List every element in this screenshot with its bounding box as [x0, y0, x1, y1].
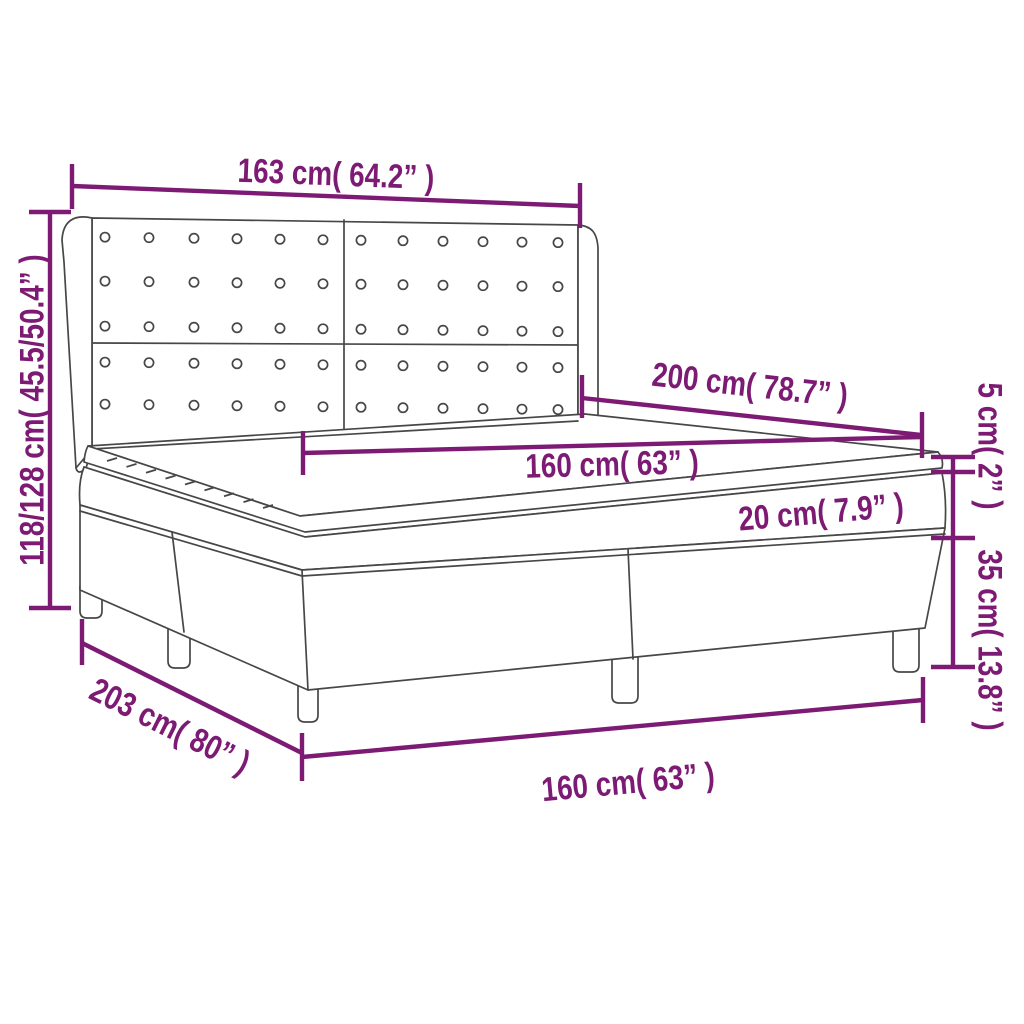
- tufting-button: [438, 281, 447, 290]
- dim-label-base-height: 35 cm( 13.8” ): [971, 549, 1009, 730]
- dim-label-mattress-width-top: 160 cm( 63” ): [525, 443, 699, 486]
- bed-leg: [612, 654, 638, 703]
- dimension-bed-height: 118/128 cm( 45.5/50.4” ): [13, 212, 71, 608]
- tufting-button: [553, 363, 562, 372]
- tufting-button: [438, 237, 447, 246]
- tufting-button: [553, 405, 562, 414]
- tufting-button: [438, 362, 447, 371]
- tufting-button: [318, 279, 327, 288]
- tufting-button: [189, 323, 198, 332]
- tufting-button: [398, 280, 407, 289]
- tufting-button: [144, 400, 153, 409]
- tufting-button: [553, 327, 562, 336]
- tufting-button: [398, 236, 407, 245]
- tufting-button: [318, 360, 327, 369]
- tufting-button: [517, 363, 526, 372]
- tufting-button: [100, 233, 109, 242]
- tufting-button: [100, 358, 109, 367]
- tufting-button: [144, 233, 153, 242]
- tufting-button: [478, 237, 487, 246]
- tufting-button: [232, 234, 241, 243]
- tufting-button: [100, 277, 109, 286]
- tufting-button: [189, 401, 198, 410]
- tufting-button: [189, 278, 198, 287]
- tufting-button: [356, 325, 365, 334]
- tufting-button: [318, 324, 327, 333]
- dim-label-mattress-length: 200 cm( 78.7” ): [650, 355, 850, 415]
- tufting-button: [275, 360, 284, 369]
- dim-label-base-width-bottom: 160 cm( 63” ): [540, 755, 716, 809]
- tufting-button: [275, 402, 284, 411]
- tufting-button: [144, 322, 153, 331]
- tufting-button: [100, 400, 109, 409]
- headboard-left-wing: [62, 217, 92, 472]
- dimension-headboard-width: 163 cm( 64.2” ): [72, 151, 580, 228]
- tufting-button: [398, 403, 407, 412]
- tufting-button: [517, 327, 526, 336]
- tufting-button: [398, 325, 407, 334]
- headboard-panel: [92, 218, 578, 449]
- tufting-button: [232, 359, 241, 368]
- tufting-button: [232, 401, 241, 410]
- dim-label-bed-height: 118/128 cm( 45.5/50.4” ): [13, 254, 51, 565]
- tufting-button: [517, 238, 526, 247]
- dim-label-headboard-width: 163 cm( 64.2” ): [237, 151, 435, 197]
- tufting-button: [232, 278, 241, 287]
- tufting-button: [318, 402, 327, 411]
- tufting-button: [553, 282, 562, 291]
- tufting-button: [438, 326, 447, 335]
- dimension-right-heights: 5 cm( 2” ) 35 cm( 13.8” ): [931, 382, 1009, 730]
- tufting-button: [144, 277, 153, 286]
- dim-label-topper-thickness: 5 cm( 2” ): [971, 382, 1009, 509]
- tufting-button: [517, 282, 526, 291]
- tufting-button: [275, 279, 284, 288]
- tufting-button: [356, 280, 365, 289]
- tufting-button: [478, 281, 487, 290]
- tufting-button: [478, 362, 487, 371]
- tufting-button: [189, 234, 198, 243]
- tufting-button: [100, 322, 109, 331]
- tufting-button: [356, 236, 365, 245]
- tufting-button: [318, 235, 327, 244]
- tufting-button: [144, 358, 153, 367]
- tufting-button: [232, 323, 241, 332]
- tufting-button: [438, 404, 447, 413]
- tufting-button: [356, 361, 365, 370]
- tufting-button: [553, 238, 562, 247]
- bed-dimension-diagram: 163 cm( 64.2” ) 118/128 cm( 45.5/50.4” )…: [0, 0, 1024, 1024]
- tufting-button: [517, 405, 526, 414]
- tufting-button: [275, 324, 284, 333]
- tufting-button: [356, 403, 365, 412]
- tufting-button: [478, 404, 487, 413]
- tufting-button: [275, 235, 284, 244]
- diagram-canvas: 163 cm( 64.2” ) 118/128 cm( 45.5/50.4” )…: [0, 0, 1024, 1024]
- tufting-button: [398, 361, 407, 370]
- tufting-button: [189, 359, 198, 368]
- tufting-button: [478, 326, 487, 335]
